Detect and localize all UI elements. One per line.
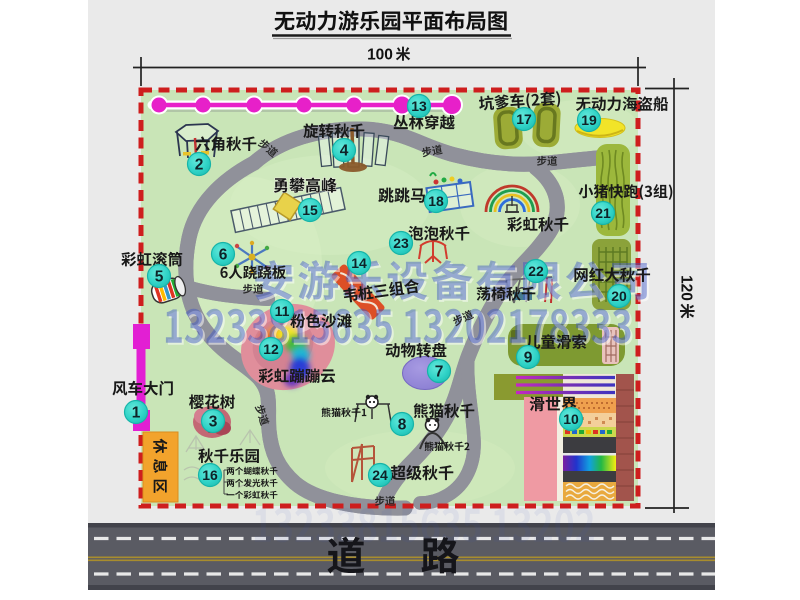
svg-text:3: 3: [209, 414, 218, 431]
svg-text:7: 7: [435, 364, 444, 381]
svg-text:21: 21: [595, 205, 611, 221]
svg-text:19: 19: [581, 112, 597, 128]
svg-text:13: 13: [411, 98, 427, 114]
svg-text:17: 17: [516, 111, 532, 127]
svg-text:18: 18: [428, 193, 444, 209]
svg-text:4: 4: [340, 143, 349, 160]
svg-text:9: 9: [524, 350, 533, 367]
svg-text:24: 24: [372, 467, 388, 483]
svg-text:1: 1: [132, 405, 141, 422]
svg-text:20: 20: [611, 288, 627, 304]
svg-text:23: 23: [393, 235, 409, 251]
svg-text:22: 22: [528, 263, 544, 279]
svg-text:2: 2: [195, 157, 204, 174]
svg-text:11: 11: [275, 303, 290, 319]
svg-text:5: 5: [155, 269, 164, 286]
svg-text:100: 100: [367, 47, 393, 64]
svg-text:10: 10: [563, 411, 579, 427]
svg-text:8: 8: [398, 417, 407, 434]
svg-text:6: 6: [219, 247, 228, 264]
svg-text:14: 14: [351, 255, 367, 271]
svg-text:15: 15: [302, 202, 318, 218]
svg-text:120: 120: [678, 275, 695, 301]
svg-text:16: 16: [202, 467, 218, 483]
svg-text:12: 12: [263, 341, 279, 357]
